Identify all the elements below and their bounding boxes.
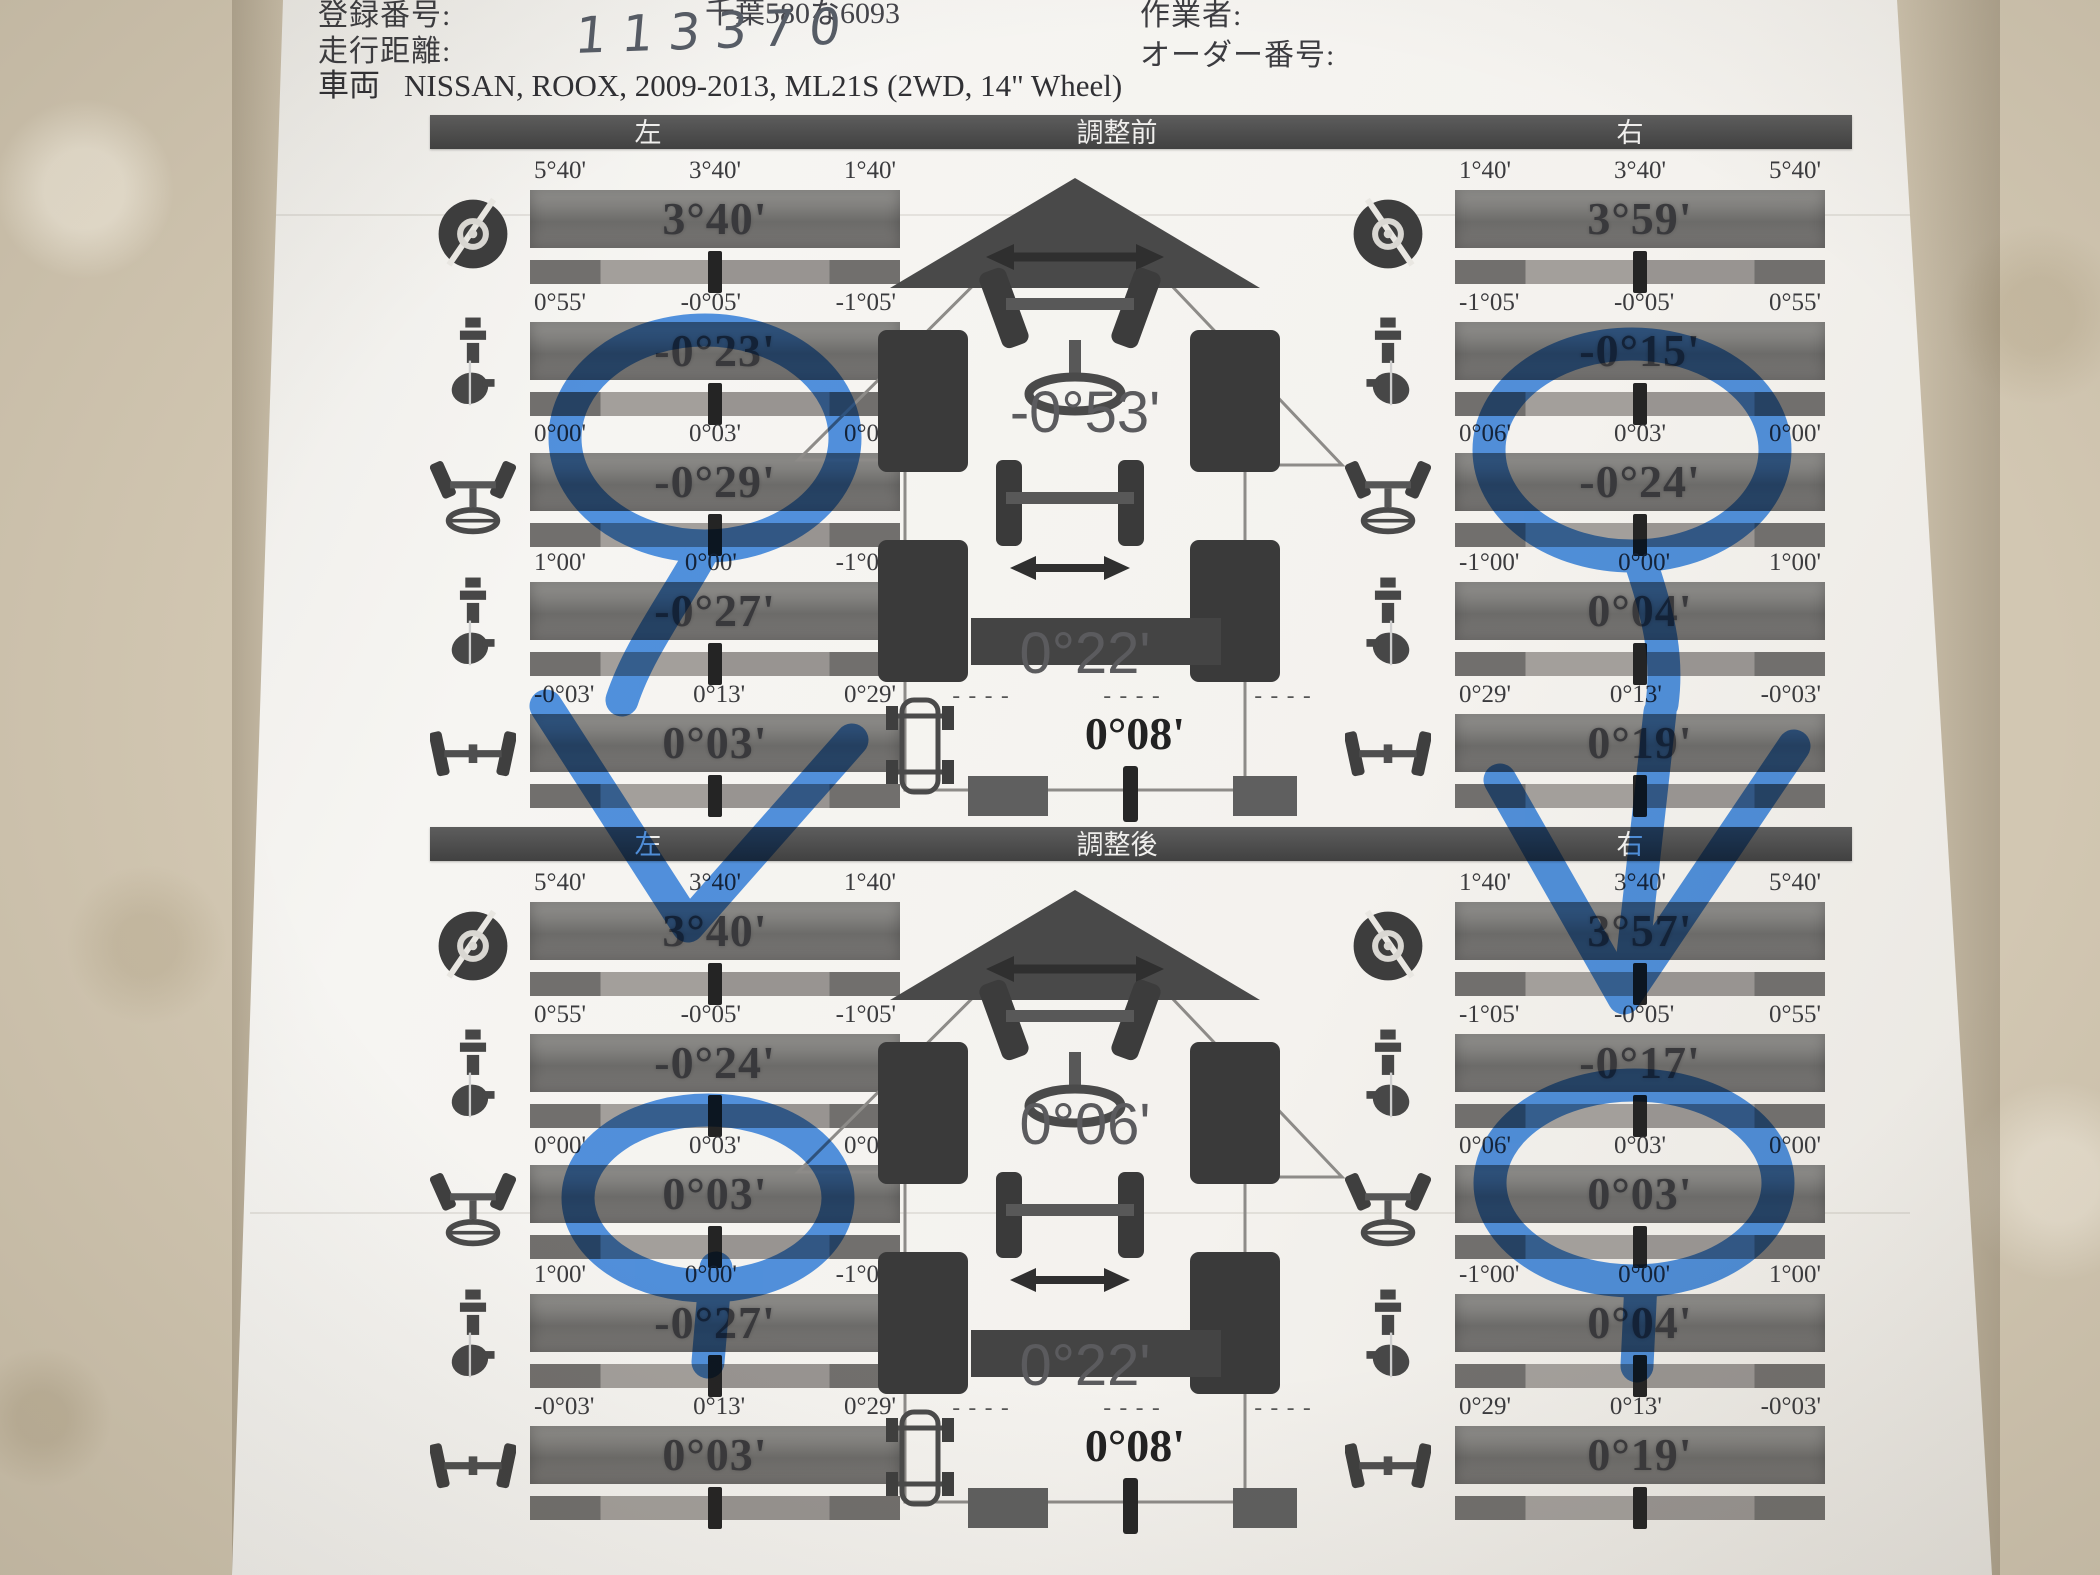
center-tick [1633, 963, 1647, 1005]
vehicle-line: 車両NISSAN, ROOX, 2009-2013, ML21S (2WD, 1… [318, 60, 1122, 105]
tick-label: 0°55' [534, 289, 586, 317]
tick-label: 1°00' [534, 549, 586, 577]
tick-label: 0°29' [1459, 1393, 1511, 1421]
center-tick [708, 963, 722, 1005]
gauge-value: 0°19' [1455, 714, 1825, 772]
tick-label: -0°05' [1614, 1001, 1674, 1029]
gauge-value: 0°04' [1455, 1294, 1825, 1352]
gauge-value: 0°03' [1455, 1165, 1825, 1223]
section-title-left: 左 [558, 116, 738, 150]
gauge-bar: 0°19' [1455, 714, 1825, 772]
caster-icon [423, 894, 523, 998]
gauge-bar: 0°19' [1455, 1426, 1825, 1484]
caster-icon [423, 182, 523, 286]
report-paper: 登録番号: 千葉580な6093 作業者: 走行距離: 113370 オーダー番… [0, 0, 2100, 1575]
sai-icon [423, 1286, 523, 1390]
center-tick [708, 383, 722, 425]
center-tick [1633, 251, 1647, 293]
thrust-dash: ---- [937, 1397, 1027, 1422]
tick-label: 0°06' [1459, 1132, 1511, 1160]
gauge-row-right-caster: 1°40'3°40'5°40' 3°59' [1455, 157, 1825, 289]
gauge-value: 0°19' [1455, 1426, 1825, 1484]
tick-label: 1°40' [1459, 869, 1511, 897]
rear-toe-icon [423, 1418, 523, 1522]
gauge-row-right-toe: 0°06'0°03'0°00' 0°03' [1455, 1132, 1825, 1264]
gauge-bar: 3°59' [1455, 190, 1825, 248]
tick-label: 0°00' [1618, 549, 1670, 577]
tick-label: 0°03' [1614, 1132, 1666, 1160]
center-tick [708, 643, 722, 685]
section-title-center: 調整後 [1007, 828, 1227, 862]
tick-label: 1°00' [1769, 549, 1821, 577]
tick-label: -0°03' [534, 681, 594, 709]
tick-label: -0°03' [1761, 1393, 1821, 1421]
camber-icon [423, 1026, 523, 1130]
gauge-bar: -0°15' [1455, 322, 1825, 380]
tick-label: -0°03' [534, 1393, 594, 1421]
gauge-row-right-sai: -1°00'0°00'1°00' 0°04' [1455, 1261, 1825, 1393]
tolerance-bar [1455, 1235, 1825, 1259]
tick-label: 3°40' [1614, 869, 1666, 897]
gauge-value: 0°04' [1455, 582, 1825, 640]
tolerance-bar [1455, 523, 1825, 547]
tick-label: 0°00' [685, 1261, 737, 1289]
tick-label: -1°05' [1459, 1001, 1519, 1029]
sai-icon [1338, 574, 1438, 678]
gauge-bar: 0°04' [1455, 1294, 1825, 1352]
rear-toe-value: 0°22' [985, 1332, 1185, 1399]
tolerance-bar [1455, 1364, 1825, 1388]
tolerance-bar [1455, 972, 1825, 996]
center-tick [1633, 643, 1647, 685]
tolerance-bar [1455, 260, 1825, 284]
center-tick [1633, 1095, 1647, 1137]
section-title-left: 左 [558, 828, 738, 862]
tick-label: 5°40' [1769, 869, 1821, 897]
toe-icon [1338, 1157, 1438, 1261]
tick-label: 1°40' [1459, 157, 1511, 185]
front-toe-value: 0°06' [985, 1091, 1185, 1158]
center-tick [708, 1355, 722, 1397]
section-title-center: 調整前 [1007, 116, 1227, 150]
tick-label: 5°40' [1769, 157, 1821, 185]
gauge-bar: 0°03' [1455, 1165, 1825, 1223]
tick-label: -1°05' [1459, 289, 1519, 317]
tick-label: 0°55' [1769, 289, 1821, 317]
camber-icon [1338, 314, 1438, 418]
thrust-angle-value: 0°08' [1040, 1419, 1230, 1472]
tick-label: 0°13' [693, 681, 745, 709]
gauge-row-right-camber: -1°05'-0°05'0°55' -0°15' [1455, 289, 1825, 421]
gauge-value: -0°15' [1455, 322, 1825, 380]
tick-label: 1°00' [534, 1261, 586, 1289]
tick-label: 0°03' [689, 1132, 741, 1160]
tick-label: 0°03' [1614, 420, 1666, 448]
tick-label: 3°40' [689, 157, 741, 185]
center-tick [708, 775, 722, 817]
gauge-value: -0°17' [1455, 1034, 1825, 1092]
gauge-value: 3°57' [1455, 902, 1825, 960]
center-tick [1633, 1487, 1647, 1529]
thrust-angle-value: 0°08' [1040, 707, 1230, 760]
tick-label: 5°40' [534, 157, 586, 185]
rear-toe-value: 0°22' [985, 620, 1185, 687]
tick-label: 0°00' [1618, 1261, 1670, 1289]
thrust-dash: ---- [1239, 685, 1329, 710]
tick-label: 0°06' [1459, 420, 1511, 448]
vehicle-label: 車両 [318, 68, 380, 103]
gauge-bar: 0°04' [1455, 582, 1825, 640]
gauge-row-right-toe: 0°06'0°03'0°00' -0°24' [1455, 420, 1825, 552]
gauge-row-right-rear-toe: 0°29'0°13'-0°03' 0°19' [1455, 1393, 1825, 1525]
tick-label: 3°40' [1614, 157, 1666, 185]
photo-of-alignment-report: 登録番号: 千葉580な6093 作業者: 走行距離: 113370 オーダー番… [0, 0, 2100, 1575]
tolerance-bar [1455, 784, 1825, 808]
thrust-dash: ---- [1239, 1397, 1329, 1422]
gauge-bar: -0°24' [1455, 453, 1825, 511]
center-tick [708, 1095, 722, 1137]
sai-icon [1338, 1286, 1438, 1390]
camber-icon [1338, 1026, 1438, 1130]
section-title-right: 右 [1540, 828, 1720, 862]
sai-icon [423, 574, 523, 678]
tick-label: 0°29' [1459, 681, 1511, 709]
mileage-handwritten-value: 113370 [573, 0, 859, 65]
vehicle-value: NISSAN, ROOX, 2009-2013, ML21S (2WD, 14"… [404, 68, 1122, 103]
center-tick [1633, 775, 1647, 817]
tick-label: 1°00' [1769, 1261, 1821, 1289]
gauge-row-right-sai: -1°00'0°00'1°00' 0°04' [1455, 549, 1825, 681]
toe-icon [423, 445, 523, 549]
tick-label: 3°40' [689, 869, 741, 897]
tick-label: 0°13' [1610, 1393, 1662, 1421]
tick-label: 0°13' [1610, 681, 1662, 709]
tick-label: -0°05' [681, 289, 741, 317]
tick-label: -1°00' [1459, 1261, 1519, 1289]
center-tick [708, 251, 722, 293]
tolerance-bar [1455, 1104, 1825, 1128]
rear-toe-icon [1338, 1418, 1438, 1522]
tick-label: -1°00' [1459, 549, 1519, 577]
operator-label: 作業者: [1140, 0, 1242, 34]
tick-label: 0°00' [1769, 420, 1821, 448]
toe-icon [423, 1157, 523, 1261]
caster-icon [1338, 894, 1438, 998]
section-title-right: 右 [1540, 116, 1720, 150]
gauge-row-right-camber: -1°05'-0°05'0°55' -0°17' [1455, 1001, 1825, 1133]
tick-label: 0°55' [1769, 1001, 1821, 1029]
toe-icon [1338, 445, 1438, 549]
tick-label: 0°00' [1769, 1132, 1821, 1160]
camber-icon [423, 314, 523, 418]
tick-label: 0°00' [534, 420, 586, 448]
gauge-bar: 3°57' [1455, 902, 1825, 960]
tick-label: 0°03' [689, 420, 741, 448]
section-before-adjustment: 左 調整前 右 5°40'3°40'1°40' 3°40' 0°55'-0°05… [0, 115, 2100, 827]
thrust-dash: ---- [937, 685, 1027, 710]
center-tick [708, 1487, 722, 1529]
gauge-value: 3°59' [1455, 190, 1825, 248]
tick-label: 0°00' [685, 549, 737, 577]
tick-label: -0°05' [681, 1001, 741, 1029]
center-tick [1633, 1355, 1647, 1397]
tolerance-bar [1455, 652, 1825, 676]
section-after-adjustment: 左 調整後 右 5°40'3°40'1°40' 3°40' 0°55'-0°05… [0, 827, 2100, 1575]
gauge-row-right-caster: 1°40'3°40'5°40' 3°57' [1455, 869, 1825, 1001]
gauge-bar: -0°17' [1455, 1034, 1825, 1092]
gauge-value: -0°24' [1455, 453, 1825, 511]
tick-label: 0°13' [693, 1393, 745, 1421]
tick-label: 0°55' [534, 1001, 586, 1029]
rear-toe-icon [1338, 706, 1438, 810]
caster-icon [1338, 182, 1438, 286]
tick-label: -0°05' [1614, 289, 1674, 317]
center-tick [1633, 383, 1647, 425]
tolerance-bar [1455, 1496, 1825, 1520]
tick-label: 5°40' [534, 869, 586, 897]
tolerance-bar [1455, 392, 1825, 416]
order-number-label: オーダー番号: [1140, 30, 1335, 74]
gauge-row-right-rear-toe: 0°29'0°13'-0°03' 0°19' [1455, 681, 1825, 813]
tick-label: 0°00' [534, 1132, 586, 1160]
rear-toe-icon [423, 706, 523, 810]
tick-label: -0°03' [1761, 681, 1821, 709]
front-toe-value: -0°53' [985, 379, 1185, 446]
